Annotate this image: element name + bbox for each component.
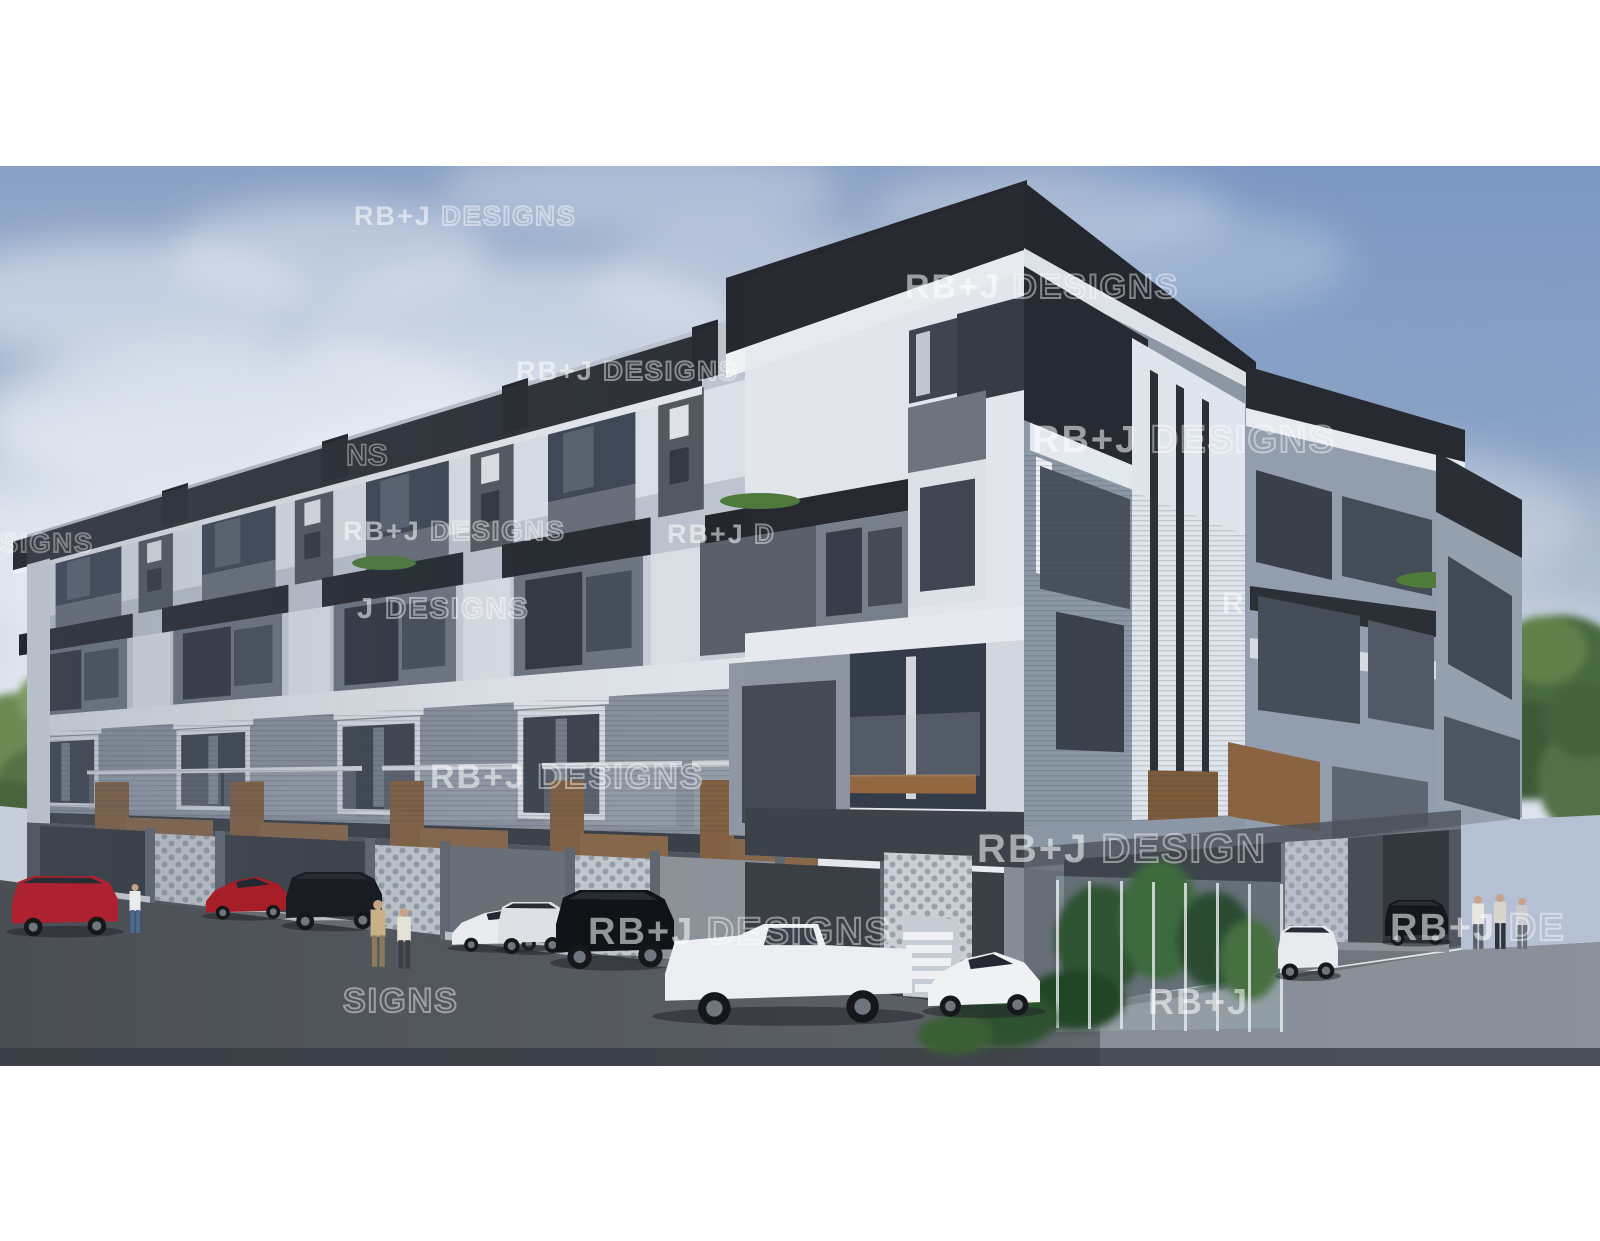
svg-text:RB+J DESIGN: RB+J DESIGN [977,827,1267,871]
svg-text:RB+J DE: RB+J DE [1390,907,1566,949]
svg-text:NS: NS [346,439,388,472]
svg-text:RB+J DESIGNS: RB+J DESIGNS [354,201,577,231]
svg-text:RB+J DESIGNS: RB+J DESIGNS [588,911,892,953]
svg-text:R: R [1222,587,1244,620]
svg-text:RB+J DESIGNS: RB+J DESIGNS [905,268,1179,306]
svg-text:RB+J DESIGNS: RB+J DESIGNS [1032,419,1336,461]
svg-text:RB+J DESIGNS: RB+J DESIGNS [430,758,704,796]
svg-text:RB+J DESIGNS: RB+J DESIGNS [516,356,739,386]
svg-text:J DESIGNS: J DESIGNS [357,593,530,625]
svg-text:RB+J: RB+J [1148,981,1249,1022]
svg-text:RB+J DESIGNS: RB+J DESIGNS [343,516,566,546]
svg-text:SIGNS: SIGNS [0,528,94,558]
svg-text:RB+J D: RB+J D [667,519,776,549]
svg-text:SIGNS: SIGNS [343,982,459,1020]
